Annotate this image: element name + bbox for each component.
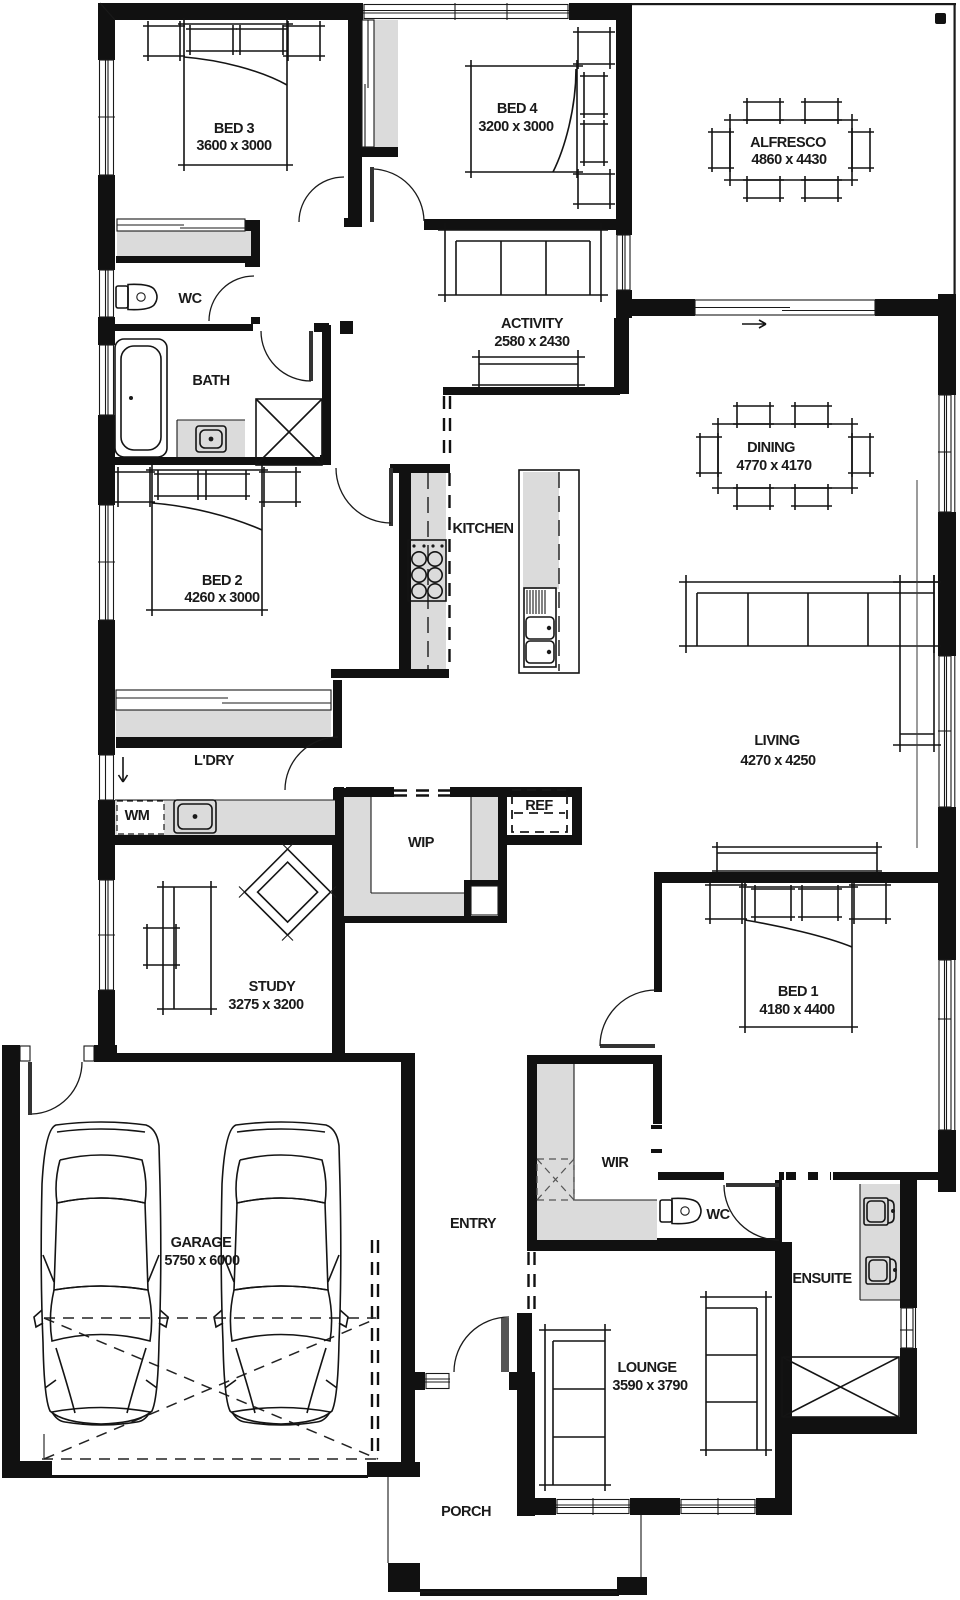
svg-text:ENTRY: ENTRY [450,1216,497,1232]
svg-text:PORCH: PORCH [441,1504,491,1520]
svg-text:LOUNGE: LOUNGE [617,1360,677,1376]
svg-text:5750 x 6000: 5750 x 6000 [164,1253,240,1269]
svg-text:4270 x 4250: 4270 x 4250 [740,753,816,769]
svg-text:BATH: BATH [192,373,229,389]
svg-text:WC: WC [178,291,202,307]
svg-text:4860 x 4430: 4860 x 4430 [751,152,827,168]
svg-text:3200 x 3000: 3200 x 3000 [478,119,554,135]
svg-text:BED 4: BED 4 [497,101,538,117]
svg-text:3600 x 3000: 3600 x 3000 [196,138,272,154]
svg-text:KITCHEN: KITCHEN [453,521,514,537]
svg-text:GARAGE: GARAGE [171,1235,232,1251]
svg-text:L'DRY: L'DRY [194,753,235,769]
svg-text:STUDY: STUDY [249,979,296,995]
svg-text:WM: WM [125,808,150,824]
svg-text:WIR: WIR [602,1155,630,1171]
svg-text:4260 x 3000: 4260 x 3000 [184,590,260,606]
svg-text:3590 x 3790: 3590 x 3790 [612,1378,688,1394]
svg-text:LIVING: LIVING [754,733,800,749]
svg-text:2580 x 2430: 2580 x 2430 [494,334,570,350]
svg-text:BED 1: BED 1 [778,984,819,1000]
svg-text:4180 x 4400: 4180 x 4400 [759,1002,835,1018]
svg-text:ENSUITE: ENSUITE [792,1271,852,1287]
svg-text:4770 x 4170: 4770 x 4170 [736,458,812,474]
svg-text:BED 2: BED 2 [202,573,243,589]
svg-text:REF: REF [525,798,553,814]
svg-text:WC: WC [706,1207,730,1223]
svg-text:DINING: DINING [747,440,795,456]
svg-text:ALFRESCO: ALFRESCO [750,135,826,151]
svg-text:BED 3: BED 3 [214,121,255,137]
svg-text:3275 x 3200: 3275 x 3200 [228,997,304,1013]
svg-text:WIP: WIP [408,835,435,851]
svg-text:ACTIVITY: ACTIVITY [501,316,564,332]
